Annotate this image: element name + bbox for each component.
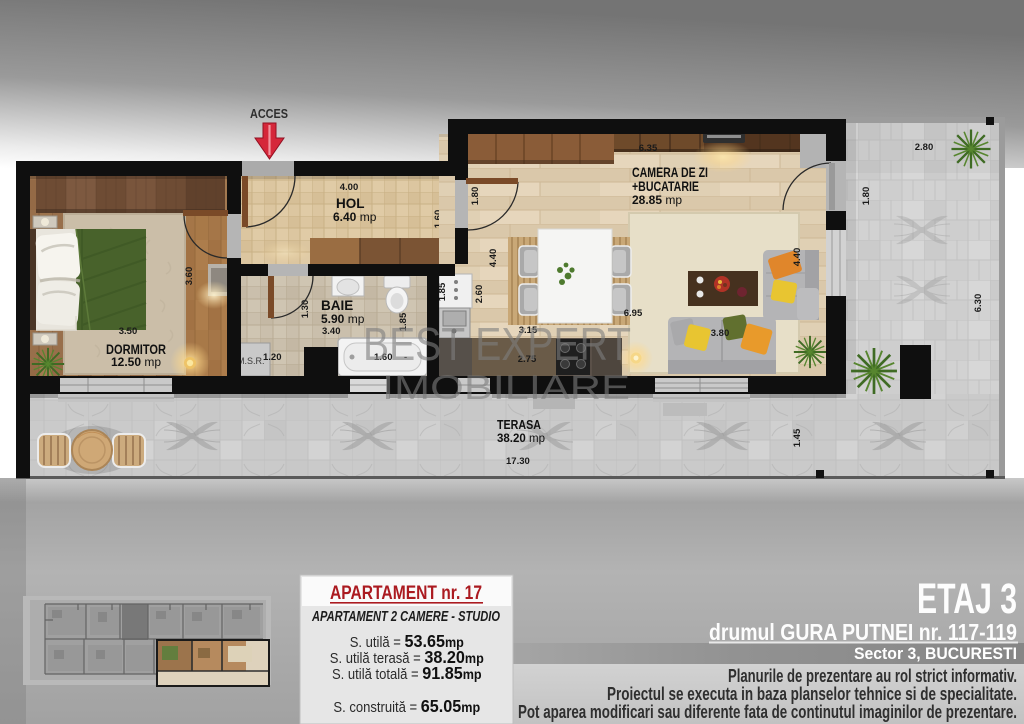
svg-text:3.40: 3.40	[322, 326, 341, 337]
svg-text:1.80: 1.80	[861, 187, 872, 206]
svg-text:4.40: 4.40	[488, 249, 499, 268]
svg-text:Sector 3, BUCURESTI: Sector 3, BUCURESTI	[854, 645, 1017, 663]
svg-text:ETAJ 3: ETAJ 3	[917, 575, 1017, 623]
svg-text:S. construită = 65.05mp: S. construită = 65.05mp	[333, 696, 480, 716]
svg-text:BAIE: BAIE	[321, 298, 353, 313]
svg-text:3.50: 3.50	[119, 326, 138, 337]
svg-text:2.60: 2.60	[474, 285, 485, 304]
svg-text:3.60: 3.60	[184, 267, 195, 286]
svg-text:Planurile de prezentare au rol: Planurile de prezentare au rol strict in…	[728, 666, 1017, 686]
svg-text:6.40 mp: 6.40 mp	[333, 210, 377, 224]
svg-text:ACCES: ACCES	[250, 106, 288, 121]
svg-text:+BUCATARIE: +BUCATARIE	[632, 179, 699, 194]
svg-text:4.00: 4.00	[340, 182, 359, 193]
svg-text:IMOBILIARE: IMOBILIARE	[382, 369, 630, 407]
svg-text:S. utilă totală = 91.85mp: S. utilă totală = 91.85mp	[332, 663, 482, 683]
svg-text:2.80: 2.80	[915, 142, 934, 153]
svg-text:APARTAMENT nr. 17: APARTAMENT nr. 17	[330, 583, 482, 604]
svg-text:4.40: 4.40	[792, 248, 803, 267]
svg-text:12.50 mp: 12.50 mp	[111, 355, 161, 369]
svg-text:TERASA: TERASA	[497, 418, 541, 432]
svg-text:28.85 mp: 28.85 mp	[632, 193, 682, 207]
svg-text:Proiectul se executa in baza p: Proiectul se executa in baza planselor t…	[607, 684, 1017, 704]
svg-text:M.S.R.: M.S.R.	[237, 356, 265, 366]
svg-text:1.80: 1.80	[470, 187, 481, 206]
svg-text:6.30: 6.30	[973, 294, 984, 313]
svg-text:1.20: 1.20	[263, 352, 282, 363]
svg-text:5.90 mp: 5.90 mp	[321, 312, 365, 326]
svg-text:38.20 mp: 38.20 mp	[497, 433, 545, 445]
svg-text:1.30: 1.30	[300, 300, 311, 319]
svg-text:drumul GURA PUTNEI nr. 117-119: drumul GURA PUTNEI nr. 117-119	[709, 619, 1017, 645]
svg-text:17.30: 17.30	[506, 456, 530, 467]
svg-text:1.45: 1.45	[792, 428, 803, 447]
svg-text:BEST EXPERT: BEST EXPERT	[363, 318, 631, 370]
svg-text:Pot aparea modificari sau dife: Pot aparea modificari sau diferente fata…	[518, 702, 1017, 722]
svg-text:CAMERA DE ZI: CAMERA DE ZI	[632, 165, 708, 180]
svg-text:3.80: 3.80	[711, 328, 730, 339]
svg-text:6.35: 6.35	[639, 143, 658, 154]
svg-text:APARTAMENT 2 CAMERE - STUDIO: APARTAMENT 2 CAMERE - STUDIO	[311, 609, 500, 625]
svg-text:HOL: HOL	[336, 196, 365, 211]
